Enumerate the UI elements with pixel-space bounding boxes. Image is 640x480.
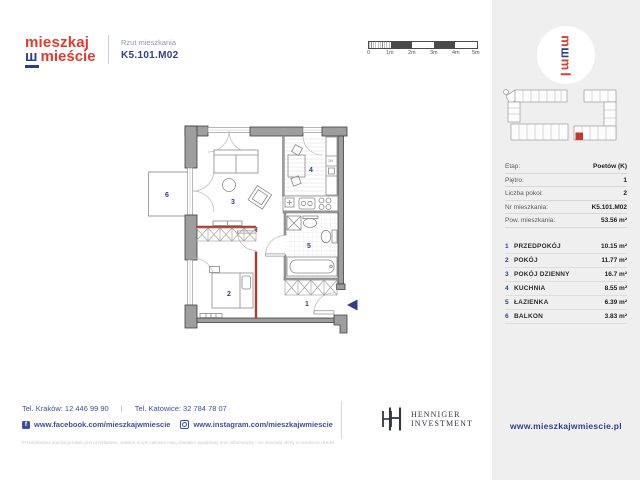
header-divider (108, 35, 109, 64)
scale-label: 1m (386, 50, 394, 56)
footer-divider (341, 401, 342, 439)
kitchen-appliance-column: ZM (326, 137, 337, 195)
floor-plan-sheet: mieszkaj шmieście Rzut mieszkania K5.101… (0, 0, 640, 480)
estate-site-plan (498, 86, 634, 156)
facebook-icon: f (22, 421, 30, 429)
room-label-balcony: 6 (165, 192, 169, 199)
room-row-przedpokoj: 1 PRZEDPOKÓJ 10.15 m² (505, 240, 627, 254)
brand-logo: mieszkaj шmieście (25, 36, 96, 68)
detail-row-etap: Etap: Poetów (K) (505, 160, 627, 174)
toilet (321, 230, 337, 243)
phone-krakow: Tel. Kraków: 12 446 99 90 (22, 404, 109, 413)
page-subtitle: Rzut mieszkania (121, 38, 178, 47)
room-label-bedroom: 2 (227, 291, 231, 298)
sofa (214, 150, 258, 173)
instagram-icon (180, 420, 189, 429)
armchair (248, 186, 272, 210)
apartment-id: K5.101.M02 (121, 50, 178, 61)
scale-segment-dark (434, 42, 456, 48)
room-row-lazienka: 5 ŁAZIENKA 6.39 m² (505, 296, 627, 310)
brand-logo-w-glyph: ш (25, 48, 38, 65)
kitchen-floor-hatch (284, 139, 325, 195)
bed (210, 267, 254, 309)
bedroom-wardrobe (196, 228, 256, 241)
henniger-monogram-icon (379, 406, 405, 432)
mwm-badge: m ш m (537, 26, 595, 84)
detail-row-powierzchnia: Pow. mieszkania: 53.56 m² (505, 214, 627, 228)
developer-name: HENNIGER INVESTMENT (411, 410, 473, 428)
mwm-monogram: m ш m (559, 35, 574, 75)
tv-shelf (213, 221, 242, 226)
room-row-pokoj: 2 POKÓJ 11.77 m² (505, 254, 627, 268)
balcony-outline (149, 172, 193, 216)
scale-segment-ruler (369, 42, 391, 48)
social-links: f www.facebook.com/mieszkajwmiescie www.… (22, 420, 333, 429)
room-label-bathroom: 5 (307, 243, 311, 250)
scale-segment-dark (391, 42, 413, 48)
mwm-bar (561, 73, 571, 76)
title-block: Rzut mieszkania K5.101.M02 (121, 38, 178, 61)
brand-logo-line2: шmieście (25, 50, 96, 64)
phone-separator: | (121, 404, 123, 413)
round-table (223, 179, 236, 192)
kitchen-counter (283, 196, 338, 211)
developer-name-line2: INVESTMENT (411, 419, 473, 428)
site-building-right (574, 90, 616, 140)
instagram-icon-dot (182, 422, 187, 427)
room-row-kuchnia: 4 KUCHNIA 8.55 m² (505, 282, 627, 296)
scale-label: 0 (367, 50, 370, 56)
radiator (200, 314, 222, 318)
scale-segment-light (412, 42, 434, 48)
scale-segment-light (455, 42, 477, 48)
scale-label: 4m (452, 50, 460, 56)
scale-label: 3m (430, 50, 438, 56)
room-label-hall: 1 (305, 301, 309, 308)
scale-bar-segments (368, 41, 478, 49)
brand-logo-city: mieście (41, 48, 96, 65)
entrance-arrow-icon (347, 300, 358, 311)
phone-katowice: Tel. Katowice: 32 784 78 07 (135, 404, 227, 413)
room-row-balkon: 6 BALKON 3.83 m² (505, 310, 627, 324)
developer-logo: HENNIGER INVESTMENT (365, 406, 487, 432)
site-building-left (504, 90, 569, 141)
apartment-location-marker (576, 133, 584, 141)
facebook-link[interactable]: www.facebook.com/mieszkajwmiescie (34, 420, 170, 429)
logo-underline (25, 65, 39, 68)
apartment-details-table: Etap: Poetów (K) Piętro: 1 Liczba pokoi:… (505, 160, 627, 228)
website-link[interactable]: www.mieszkajwmiescie.pl (492, 421, 640, 431)
room-row-pokoj-dzienny: 3 POKÓJ DZIENNY 16.7 m² (505, 268, 627, 282)
hallway-wardrobe (285, 280, 337, 295)
legal-disclaimer: Przedstawiona aranżacja lokalu jest przy… (22, 440, 334, 445)
detail-row-numer: Nr mieszkania: K5.101.M02 (505, 201, 627, 215)
room-label-kitchen: 4 (309, 167, 313, 174)
detail-row-pokoje: Liczba pokoi: 2 (505, 187, 627, 201)
scale-bar: 0 1m 2m 3m 4m 5m (368, 41, 478, 57)
entrance-door (314, 300, 358, 315)
bathroom-sink (303, 216, 318, 228)
scale-label: 5m (472, 50, 480, 56)
phone-numbers: Tel. Kraków: 12 446 99 90 | Tel. Katowic… (22, 404, 227, 413)
room-list: 1 PRZEDPOKÓJ 10.15 m² 2 POKÓJ 11.77 m² 3… (505, 240, 627, 324)
mwm-letter-w: ш (559, 47, 574, 58)
washing-machine (287, 216, 301, 230)
detail-row-pietro: Piętro: 1 (505, 174, 627, 188)
room-label-living: 3 (231, 199, 235, 206)
mwm-letter-m2: m (559, 58, 574, 70)
scale-label: 2m (408, 50, 416, 56)
scale-bar-labels: 0 1m 2m 3m 4m 5m (368, 49, 478, 57)
bathtub (287, 257, 337, 276)
apartment-floor-plan: ZM (110, 88, 370, 398)
instagram-link[interactable]: www.instagram.com/mieszkajwmiescie (193, 420, 332, 429)
appliance-label: ZM (328, 159, 333, 163)
mwm-letter-m1: m (559, 35, 574, 47)
info-sidebar: m ш m (492, 0, 640, 480)
developer-name-line1: HENNIGER (411, 410, 473, 419)
